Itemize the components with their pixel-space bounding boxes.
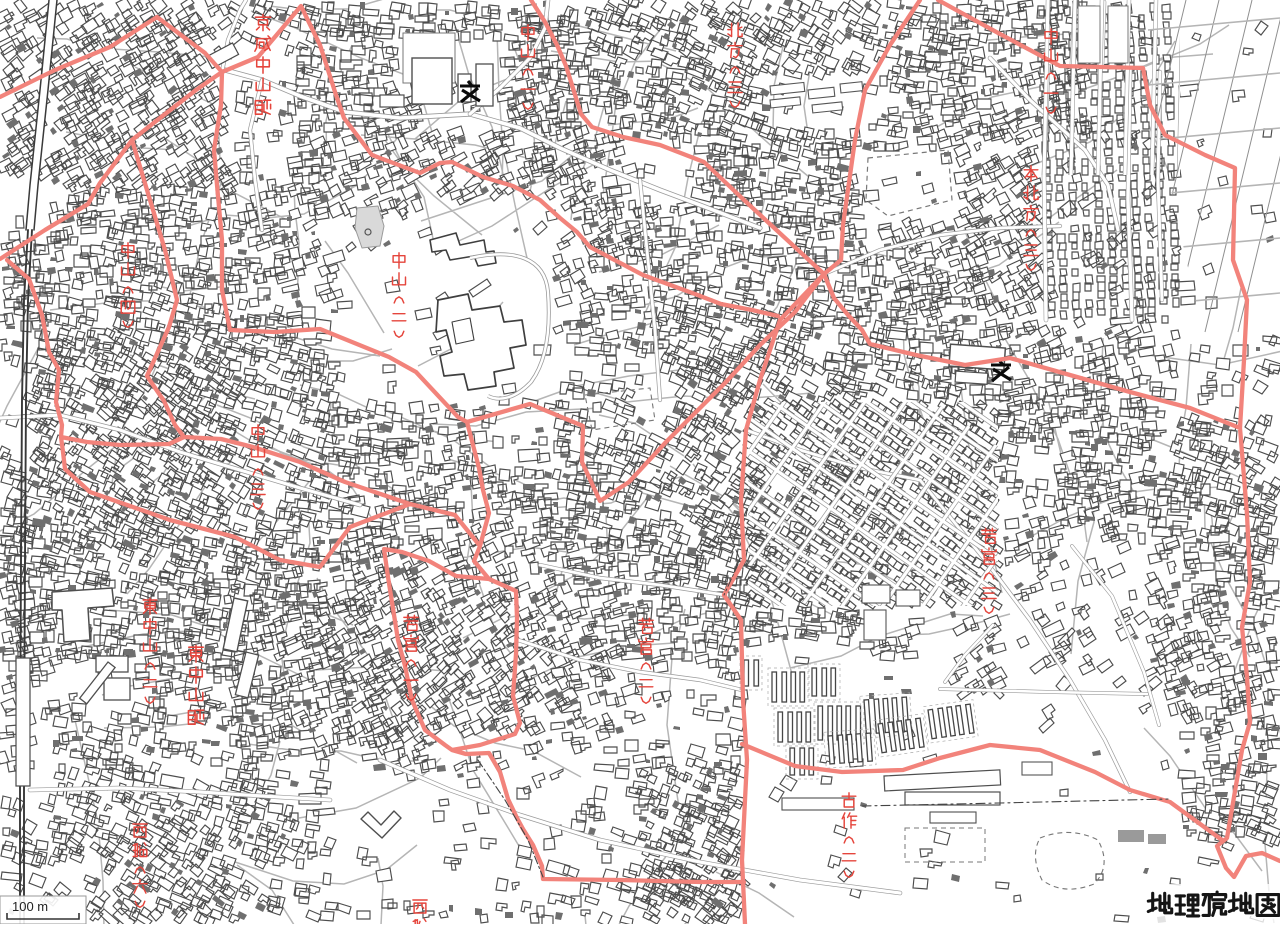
svg-text:100 m: 100 m: [12, 899, 48, 914]
